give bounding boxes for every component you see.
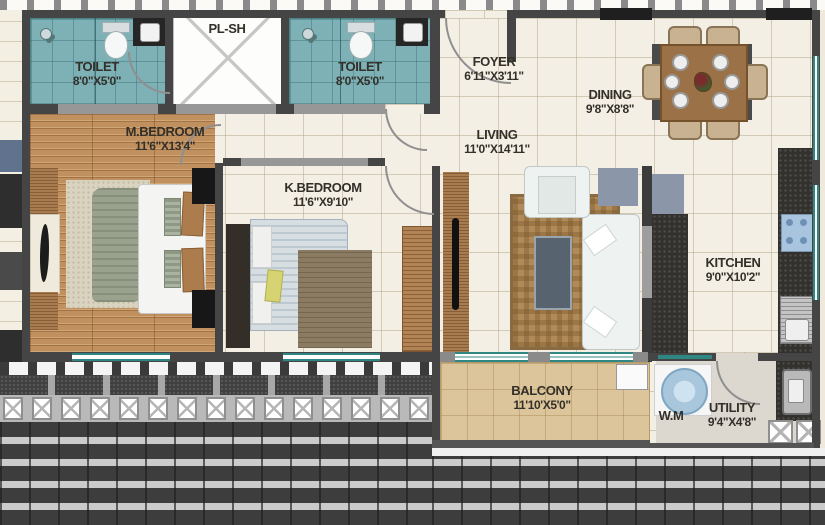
wardrobe <box>30 168 58 214</box>
hob-icon <box>781 214 814 252</box>
room-label-mbedroom: M.BEDROOM 11'6"X13'4" <box>95 125 235 154</box>
wall-shaft-toilet2 <box>281 10 289 106</box>
burner-icon <box>786 219 793 226</box>
shaft-box <box>322 397 342 420</box>
shaft-box <box>380 397 400 420</box>
nightstand <box>192 168 215 204</box>
kitchen-sink-icon <box>780 296 814 344</box>
shaft-box <box>148 397 168 420</box>
wall-seg <box>276 104 294 114</box>
burner-icon <box>786 237 793 244</box>
cushion <box>164 250 181 288</box>
pillow <box>252 226 272 268</box>
dining-chair <box>746 64 768 100</box>
side-table <box>598 168 638 206</box>
cushion <box>264 269 283 302</box>
shower-icon <box>302 28 314 40</box>
adjacent-block-icon <box>0 252 22 290</box>
room-label-plsh: PL-SH <box>173 22 281 37</box>
exterior-hatch-top <box>0 0 825 10</box>
tv-icon <box>452 218 459 310</box>
wall-mbed-kbed <box>215 163 223 352</box>
bed-blanket <box>92 188 144 302</box>
plate-icon <box>672 54 689 71</box>
shaft-box <box>90 397 110 420</box>
floor-plan: TOILET 8'0"X5'0" PL-SH TOILET 8'0"X5'0" … <box>0 0 825 525</box>
pillow <box>181 248 205 293</box>
window-strip <box>658 355 712 359</box>
room-label-wm: W.M <box>650 409 692 424</box>
room-dims: 8'0"X5'0" <box>310 75 410 89</box>
shaft-box <box>177 397 197 420</box>
wc-bowl-icon <box>349 31 373 59</box>
washbasin-icon <box>396 18 428 46</box>
room-label-foyer: FOYER 6'11"X3'11" <box>444 55 544 84</box>
shaft-box <box>61 397 81 420</box>
adjacent-block-icon <box>0 140 22 172</box>
shaft-box <box>32 397 52 420</box>
wall-seg <box>22 104 58 114</box>
room-label-toilet1: TOILET 8'0"X5'0" <box>47 60 147 89</box>
nightstand <box>192 290 215 328</box>
room-dims: 9'4"X4'8" <box>693 416 771 430</box>
room-name: LIVING <box>447 128 547 143</box>
wall-toilet2-right <box>430 10 440 106</box>
washbasin-icon <box>133 18 165 46</box>
wall-beam <box>600 8 652 20</box>
room-name: TOILET <box>310 60 410 75</box>
burner-icon <box>800 237 807 244</box>
room-name: DINING <box>558 88 662 103</box>
room-name: TOILET <box>47 60 147 75</box>
room-label-kitchen: KITCHEN 9'0"X10'2" <box>683 256 783 285</box>
room-dims: 11'10'X5'0" <box>490 399 594 413</box>
wall-seg <box>158 104 176 114</box>
cushion <box>164 198 181 236</box>
pergola-ticks <box>0 362 432 375</box>
door-opening <box>716 353 758 361</box>
shaft-box <box>351 397 371 420</box>
shaft-box <box>206 397 226 420</box>
shower-icon <box>40 28 52 40</box>
room-name: FOYER <box>444 55 544 70</box>
wall-seg <box>368 158 385 166</box>
window <box>813 185 819 300</box>
entry-opening <box>445 10 507 18</box>
refrigerator <box>652 174 684 214</box>
balcony-ledge <box>616 364 648 390</box>
room-dims: 11'6"X13'4" <box>95 140 235 154</box>
basin-bowl-icon <box>140 23 160 42</box>
armchair-seat <box>538 176 576 214</box>
burner-icon <box>800 219 807 226</box>
room-label-balcony: BALCONY 11'10'X5'0" <box>490 384 594 413</box>
shaft-box <box>119 397 139 420</box>
room-name: KITCHEN <box>683 256 783 271</box>
room-dims: 11'0"X14'11" <box>447 143 547 157</box>
room-dims: 11'6"X9'10" <box>253 196 393 210</box>
deck-pattern <box>0 422 432 525</box>
room-label-dining: DINING 9'8"X8'8" <box>558 88 662 117</box>
shaft-box <box>293 397 313 420</box>
shaft-box-row <box>0 395 432 422</box>
room-dims: 9'8"X8'8" <box>558 103 662 117</box>
room-label-utility: UTILITY 9'4"X4'8" <box>693 401 771 430</box>
basin-bowl-icon <box>403 23 423 42</box>
centerpiece-icon <box>694 72 712 92</box>
room-name: K.BEDROOM <box>253 181 393 196</box>
door-frame-seg <box>440 352 455 362</box>
room-name: M.BEDROOM <box>95 125 235 140</box>
window <box>283 353 380 361</box>
wall-balcony-front <box>432 440 650 448</box>
door-frame-seg <box>528 352 550 362</box>
wall-balcony-left <box>432 362 440 448</box>
room-name: PL-SH <box>173 22 281 37</box>
utility-sink-icon <box>782 369 812 415</box>
wall-left <box>22 10 30 362</box>
deck-gap <box>432 448 825 456</box>
wc-bowl-icon <box>104 31 128 59</box>
headboard <box>226 224 250 348</box>
shaft-box <box>235 397 255 420</box>
shaft-box <box>264 397 284 420</box>
kitchen-counter <box>652 214 688 360</box>
room-label-toilet2: TOILET 8'0"X5'0" <box>310 60 410 89</box>
shaft-box <box>768 420 793 444</box>
room-dims: 8'0"X5'0" <box>47 75 147 89</box>
wall-toilets-bottom <box>22 104 440 114</box>
room-name: UTILITY <box>693 401 771 416</box>
sink-bowl-icon <box>785 319 809 341</box>
room-name: BALCONY <box>490 384 594 399</box>
deck-pattern <box>432 456 825 525</box>
plate-icon <box>664 74 680 90</box>
sink-bowl-icon <box>788 379 804 403</box>
shaft-box <box>3 397 23 420</box>
adjacent-block-icon <box>0 330 22 362</box>
wardrobe <box>30 292 58 330</box>
room-dims: 9'0"X10'2" <box>683 271 783 285</box>
coffee-table <box>534 236 572 310</box>
room-dims: 6'11"X3'11" <box>444 70 544 84</box>
wall-kbed-top <box>223 158 385 166</box>
wall-beam <box>766 8 812 20</box>
adjacent-block-icon <box>0 174 22 228</box>
room-label-kbedroom: K.BEDROOM 11'6"X9'10" <box>253 181 393 210</box>
window <box>72 353 170 361</box>
wall-opening-seg <box>642 226 652 298</box>
plate-icon <box>712 54 729 71</box>
pergola-blocks <box>0 375 432 395</box>
door-frame-seg <box>633 352 648 362</box>
wall-top <box>22 10 820 18</box>
wall-seg <box>223 158 241 166</box>
plate-icon <box>712 92 729 109</box>
plate-icon <box>724 74 740 90</box>
window <box>813 56 819 160</box>
plate-icon <box>672 92 689 109</box>
room-name: W.M <box>650 409 692 424</box>
room-label-living: LIVING 11'0"X14'11" <box>447 128 547 157</box>
bedroom-rug <box>298 250 372 348</box>
shaft-box <box>409 397 429 420</box>
